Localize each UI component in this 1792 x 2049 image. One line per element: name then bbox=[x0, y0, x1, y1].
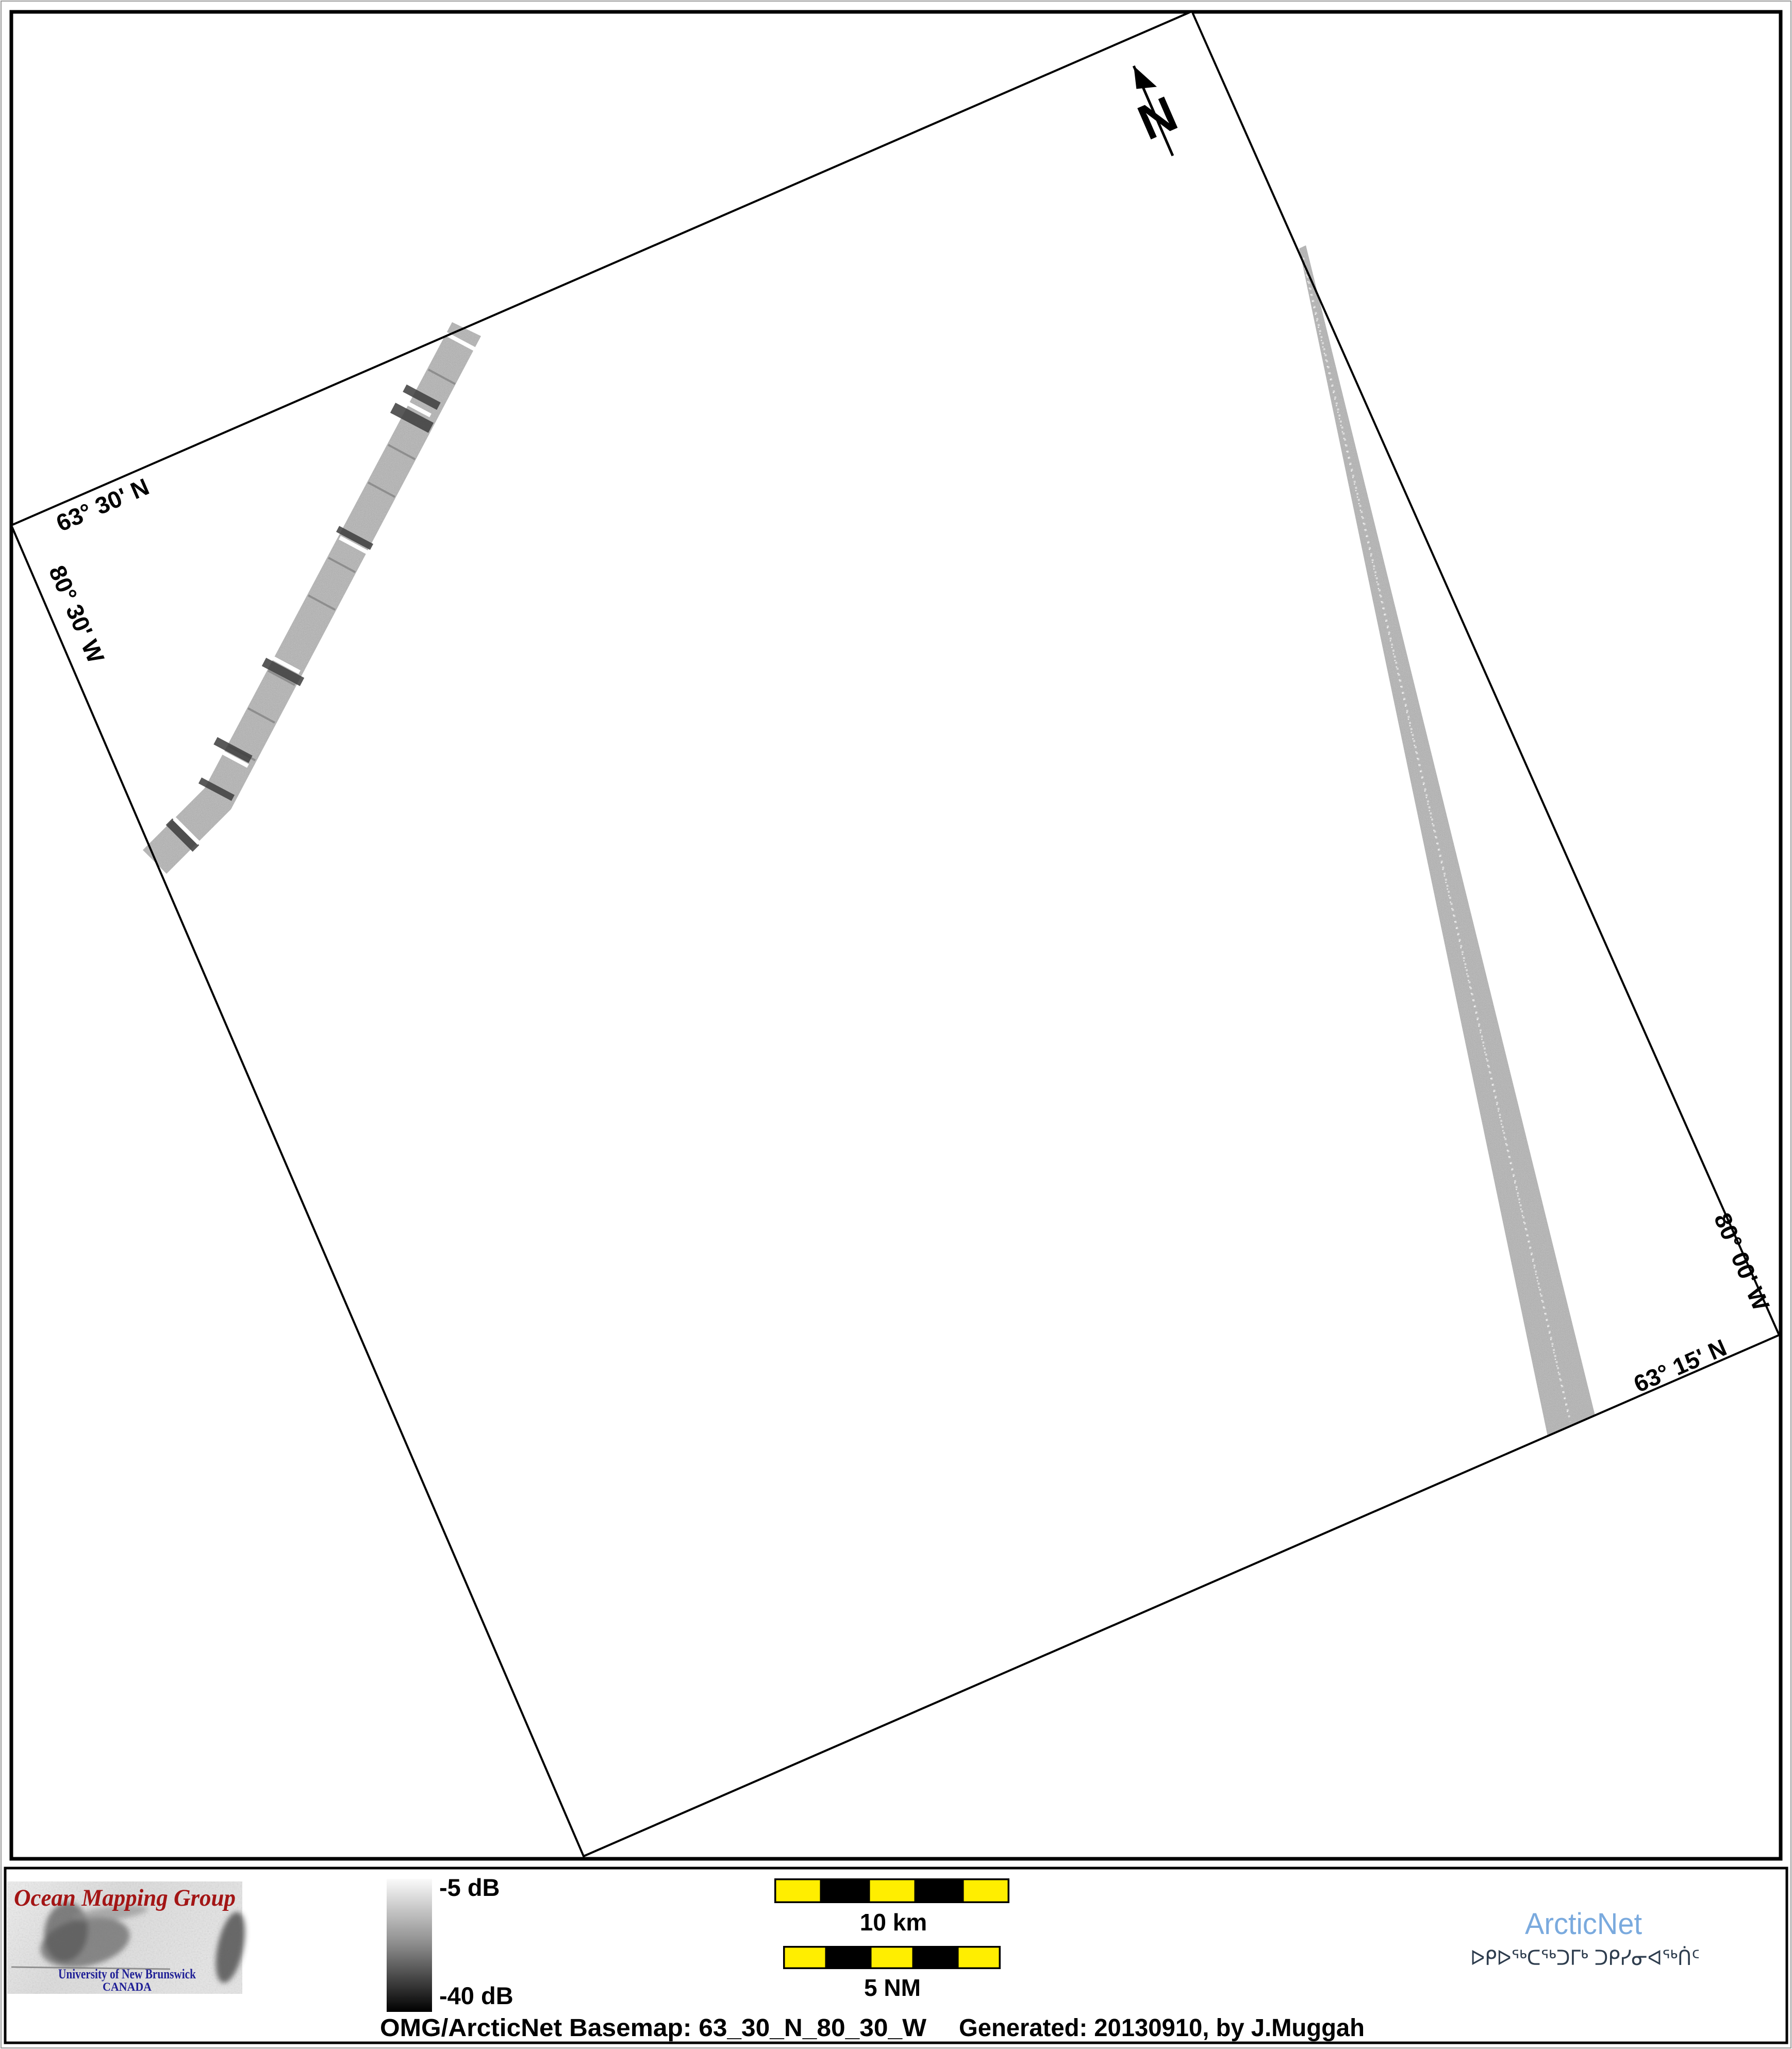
colorbar-gradient bbox=[387, 1879, 432, 2012]
omg-logo: Ocean Mapping Group University of New Br… bbox=[7, 1881, 251, 1994]
arcticnet-wordmark: ArcticNet bbox=[1525, 1907, 1642, 1941]
caption-generated: Generated: 20130910, by J.Muggah bbox=[959, 2014, 1365, 2042]
scalebar-km-segment bbox=[775, 1879, 821, 1902]
colorbar-bottom-label: -40 dB bbox=[439, 1982, 513, 2009]
scalebar-nm-segment bbox=[784, 1947, 826, 1968]
omg-logo-university: University of New Brunswick bbox=[58, 1967, 196, 1981]
scalebar-nm-segment bbox=[871, 1947, 913, 1968]
scalebar-km-segment bbox=[963, 1879, 1008, 1902]
omg-logo-country: CANADA bbox=[103, 1980, 152, 1993]
caption-basemap: OMG/ArcticNet Basemap: 63_30_N_80_30_W bbox=[380, 2014, 927, 2042]
scalebar-nm-label: 5 NM bbox=[864, 1974, 921, 2001]
scalebar-km-segment bbox=[869, 1879, 915, 1902]
arcticnet-inuktitut-tagline: ᐅᑭᐅᖅᑕᖅᑐᒥᒃ ᑐᑭᓯᓂᐊᖅᑏᑦ bbox=[1470, 1946, 1700, 1970]
colorbar-top-label: -5 dB bbox=[439, 1874, 500, 1901]
basemap-canvas: 63° 30' N 80° 30' W 80° 00' W 63° 15' N … bbox=[0, 0, 1792, 2049]
scalebar-km-label: 10 km bbox=[860, 1909, 927, 1936]
basemap-page: 63° 30' N 80° 30' W 80° 00' W 63° 15' N … bbox=[0, 0, 1792, 2049]
omg-logo-title: Ocean Mapping Group bbox=[14, 1885, 236, 1911]
scalebar-nm-segment bbox=[958, 1947, 1000, 1968]
